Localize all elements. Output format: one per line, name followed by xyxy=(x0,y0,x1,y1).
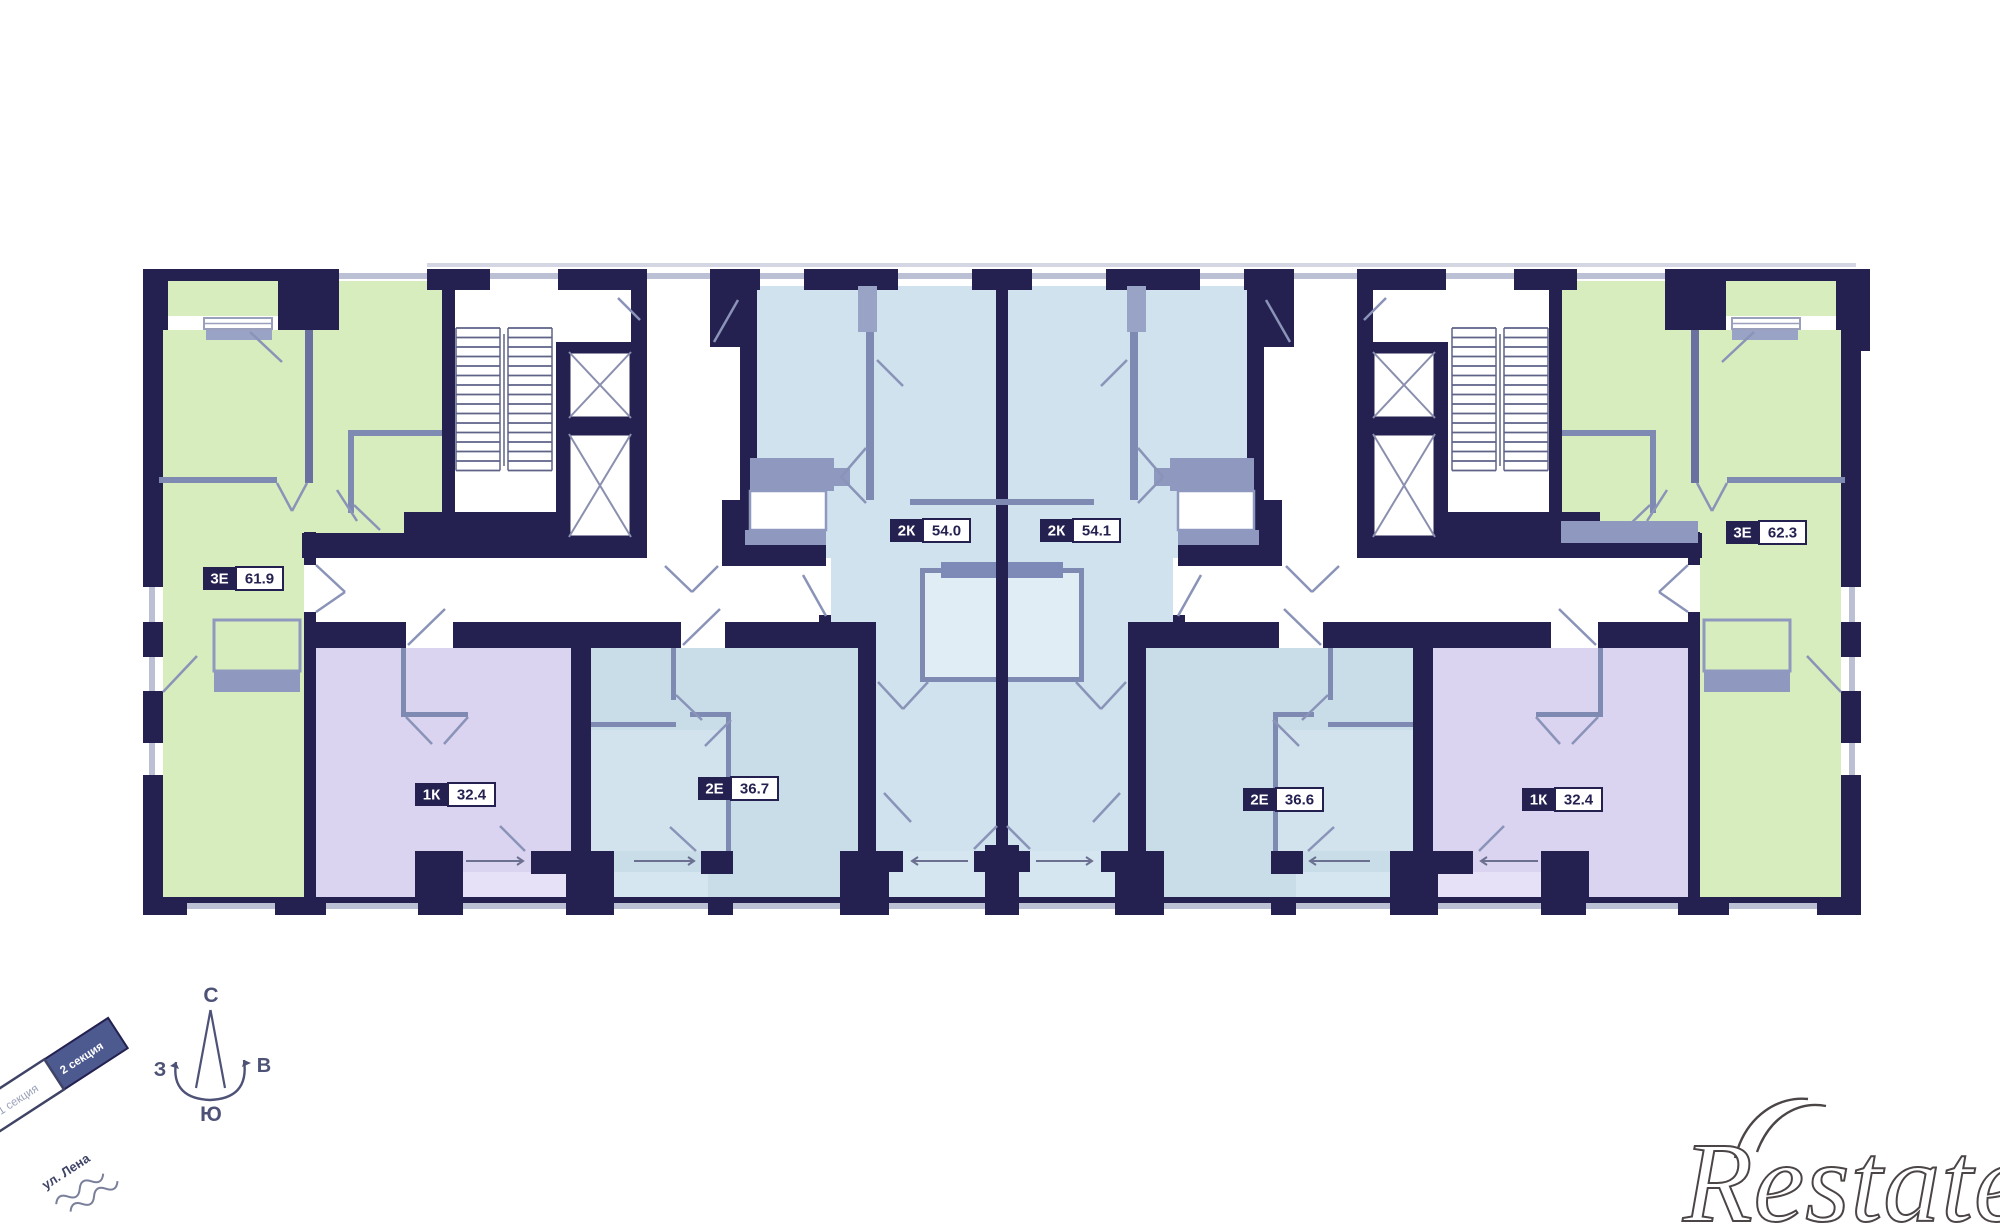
svg-text:61.9: 61.9 xyxy=(245,571,274,588)
svg-text:36.6: 36.6 xyxy=(1285,792,1314,809)
svg-text:2К: 2К xyxy=(898,523,916,540)
svg-text:В: В xyxy=(257,1055,271,1077)
svg-text:2Е: 2Е xyxy=(1250,792,1268,809)
svg-text:3Е: 3Е xyxy=(1733,525,1751,542)
svg-text:36.7: 36.7 xyxy=(740,781,769,798)
svg-text:С: С xyxy=(203,984,218,1007)
svg-text:32.4: 32.4 xyxy=(1564,792,1594,809)
svg-text:3Е: 3Е xyxy=(210,571,228,588)
svg-text:З: З xyxy=(154,1059,167,1081)
svg-text:54.0: 54.0 xyxy=(932,523,961,540)
svg-text:1К: 1К xyxy=(423,787,441,804)
svg-text:32.4: 32.4 xyxy=(457,787,487,804)
svg-text:2К: 2К xyxy=(1048,523,1066,540)
svg-text:2Е: 2Е xyxy=(705,781,723,798)
svg-text:1К: 1К xyxy=(1530,792,1548,809)
svg-text:62.3: 62.3 xyxy=(1768,525,1797,542)
svg-text:Ю: Ю xyxy=(200,1103,222,1126)
svg-text:Restate: Restate xyxy=(1682,1119,2000,1223)
svg-text:54.1: 54.1 xyxy=(1082,523,1111,540)
